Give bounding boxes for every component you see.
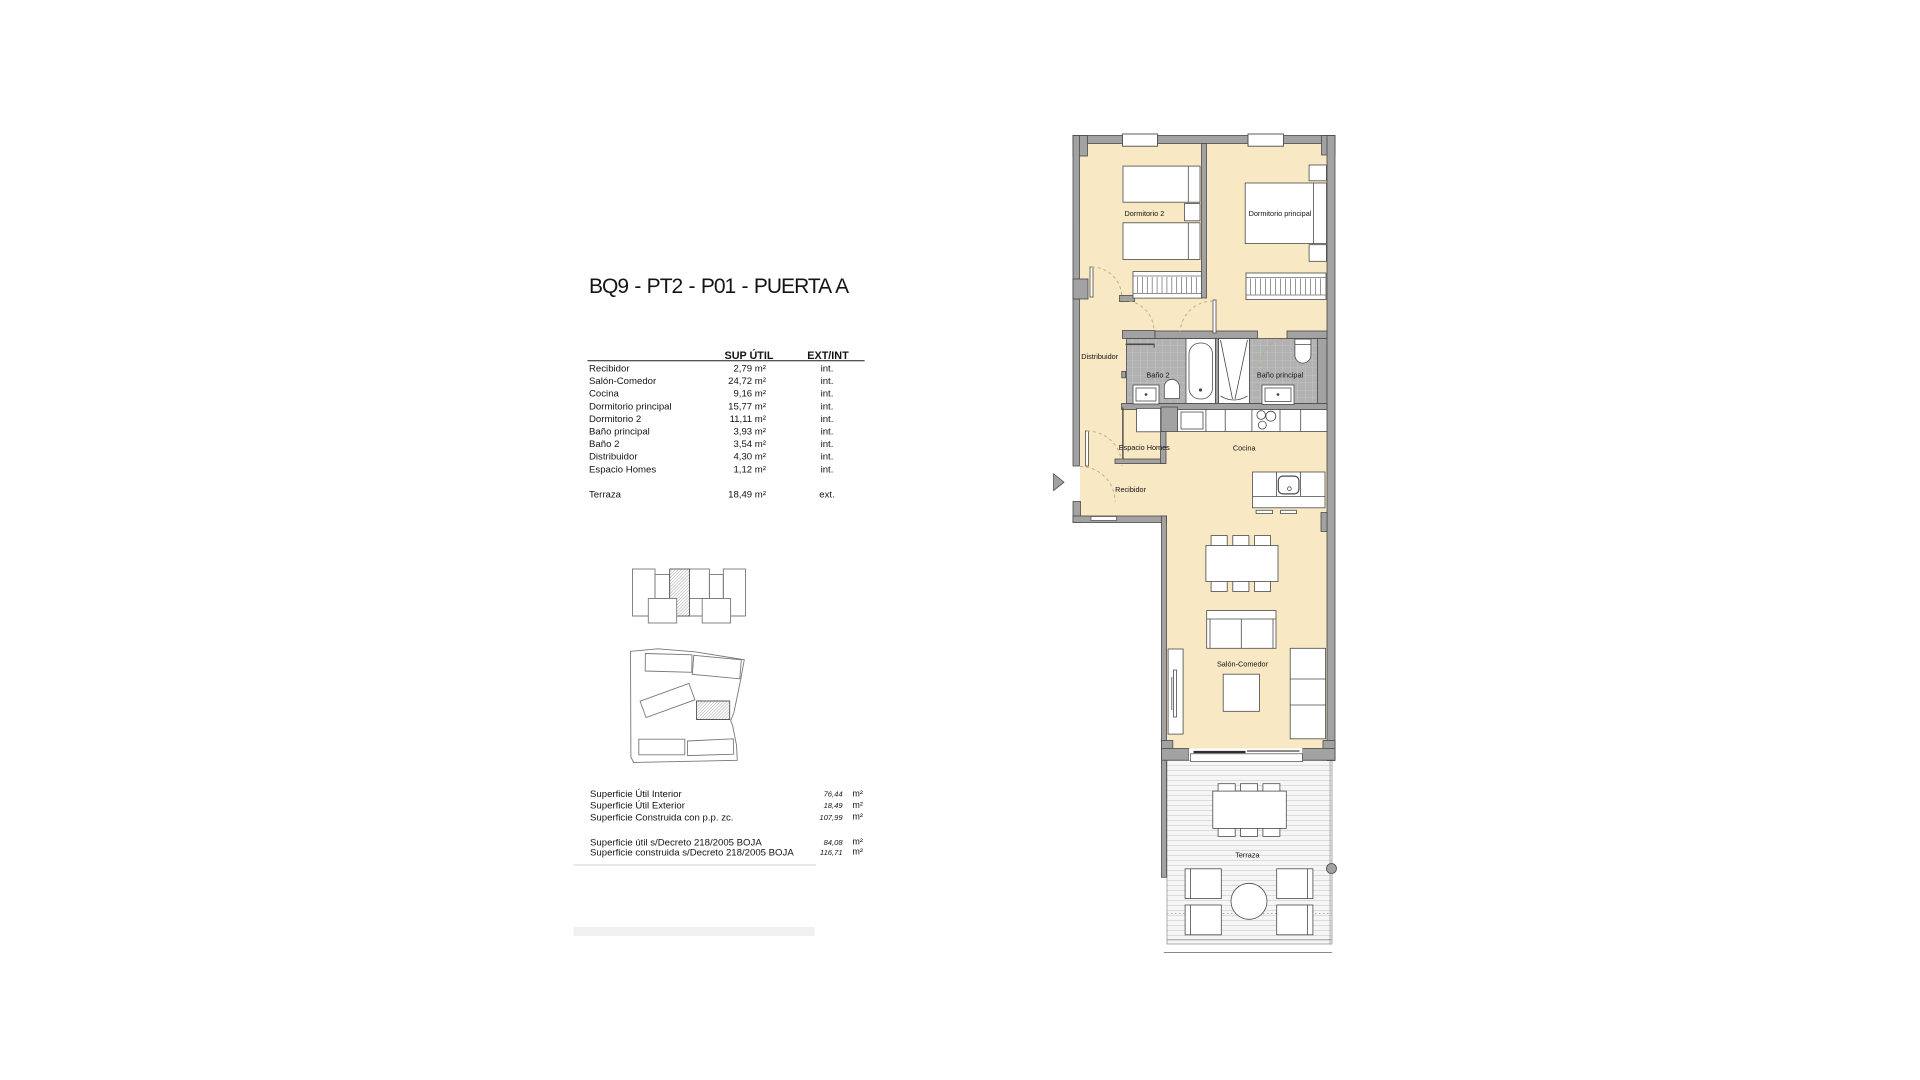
svg-text:int.: int. xyxy=(821,376,834,387)
svg-text:Baño principal: Baño principal xyxy=(589,427,650,438)
svg-text:3,93 m²: 3,93 m² xyxy=(733,427,766,438)
svg-text:Terraza: Terraza xyxy=(1235,851,1260,860)
svg-text:Dormitorio 2: Dormitorio 2 xyxy=(1125,209,1165,218)
svg-text:18,49: 18,49 xyxy=(824,801,844,810)
svg-text:int.: int. xyxy=(821,414,834,425)
svg-text:Superficie Útil Interior: Superficie Útil Interior xyxy=(590,789,683,800)
svg-text:Terraza: Terraza xyxy=(589,490,622,501)
svg-text:Distribuidor: Distribuidor xyxy=(589,452,638,463)
svg-text:24,72 m²: 24,72 m² xyxy=(728,376,767,387)
svg-text:ext.: ext. xyxy=(819,490,834,501)
svg-text:m²: m² xyxy=(852,847,863,857)
svg-text:m²: m² xyxy=(852,800,863,810)
svg-text:Distribuidor: Distribuidor xyxy=(1081,352,1118,361)
svg-text:int.: int. xyxy=(821,464,834,475)
svg-text:int.: int. xyxy=(821,364,834,375)
svg-text:m²: m² xyxy=(852,788,863,798)
svg-text:int.: int. xyxy=(821,439,834,450)
svg-text:15,77 m²: 15,77 m² xyxy=(728,401,767,412)
svg-text:m²: m² xyxy=(852,812,863,822)
svg-text:int.: int. xyxy=(821,427,834,438)
svg-text:Recibidor: Recibidor xyxy=(589,364,630,375)
svg-text:Espacio Homes: Espacio Homes xyxy=(1119,443,1170,452)
svg-text:Baño principal: Baño principal xyxy=(1257,371,1304,380)
svg-text:Dormitorio principal: Dormitorio principal xyxy=(589,401,672,412)
svg-text:Superficie Útil Exterior: Superficie Útil Exterior xyxy=(590,801,686,812)
svg-text:Recibidor: Recibidor xyxy=(1115,485,1146,494)
svg-text:Cocina: Cocina xyxy=(1233,444,1257,453)
svg-text:int.: int. xyxy=(821,389,834,400)
svg-text:Dormitorio 2: Dormitorio 2 xyxy=(589,414,641,425)
svg-text:84,08: 84,08 xyxy=(824,838,844,847)
svg-text:Superficie construida s/Decret: Superficie construida s/Decreto 218/2005… xyxy=(590,847,794,858)
svg-text:11,11 m²: 11,11 m² xyxy=(730,414,767,425)
svg-text:Baño 2: Baño 2 xyxy=(1146,371,1169,380)
svg-text:BQ9 - PT2 - P01 - PUERTA A: BQ9 - PT2 - P01 - PUERTA A xyxy=(589,275,849,298)
svg-text:2,79 m²: 2,79 m² xyxy=(733,364,766,375)
svg-text:int.: int. xyxy=(821,401,834,412)
svg-text:Salón-Comedor: Salón-Comedor xyxy=(1217,660,1269,669)
svg-text:107,99: 107,99 xyxy=(819,813,843,822)
svg-text:76,44: 76,44 xyxy=(824,790,843,799)
svg-text:m²: m² xyxy=(852,837,863,847)
svg-text:int.: int. xyxy=(821,452,834,463)
svg-text:Superficie Construida con p.p.: Superficie Construida con p.p. zc. xyxy=(590,813,733,824)
svg-text:SUP ÚTIL: SUP ÚTIL xyxy=(725,349,774,362)
svg-text:Cocina: Cocina xyxy=(589,389,620,400)
svg-text:Espacio Homes: Espacio Homes xyxy=(589,464,656,475)
svg-text:Dormitorio principal: Dormitorio principal xyxy=(1249,209,1312,218)
svg-text:Baño 2: Baño 2 xyxy=(589,439,619,450)
svg-text:3,54 m²: 3,54 m² xyxy=(733,439,766,450)
svg-text:9,16 m²: 9,16 m² xyxy=(733,389,766,400)
svg-text:EXT/INT: EXT/INT xyxy=(807,350,849,362)
svg-text:1,12 m²: 1,12 m² xyxy=(733,464,766,475)
svg-text:4,30 m²: 4,30 m² xyxy=(733,452,766,463)
svg-text:116,71: 116,71 xyxy=(820,848,843,857)
svg-text:18,49 m²: 18,49 m² xyxy=(728,490,767,501)
svg-text:Salón-Comedor: Salón-Comedor xyxy=(589,376,657,387)
